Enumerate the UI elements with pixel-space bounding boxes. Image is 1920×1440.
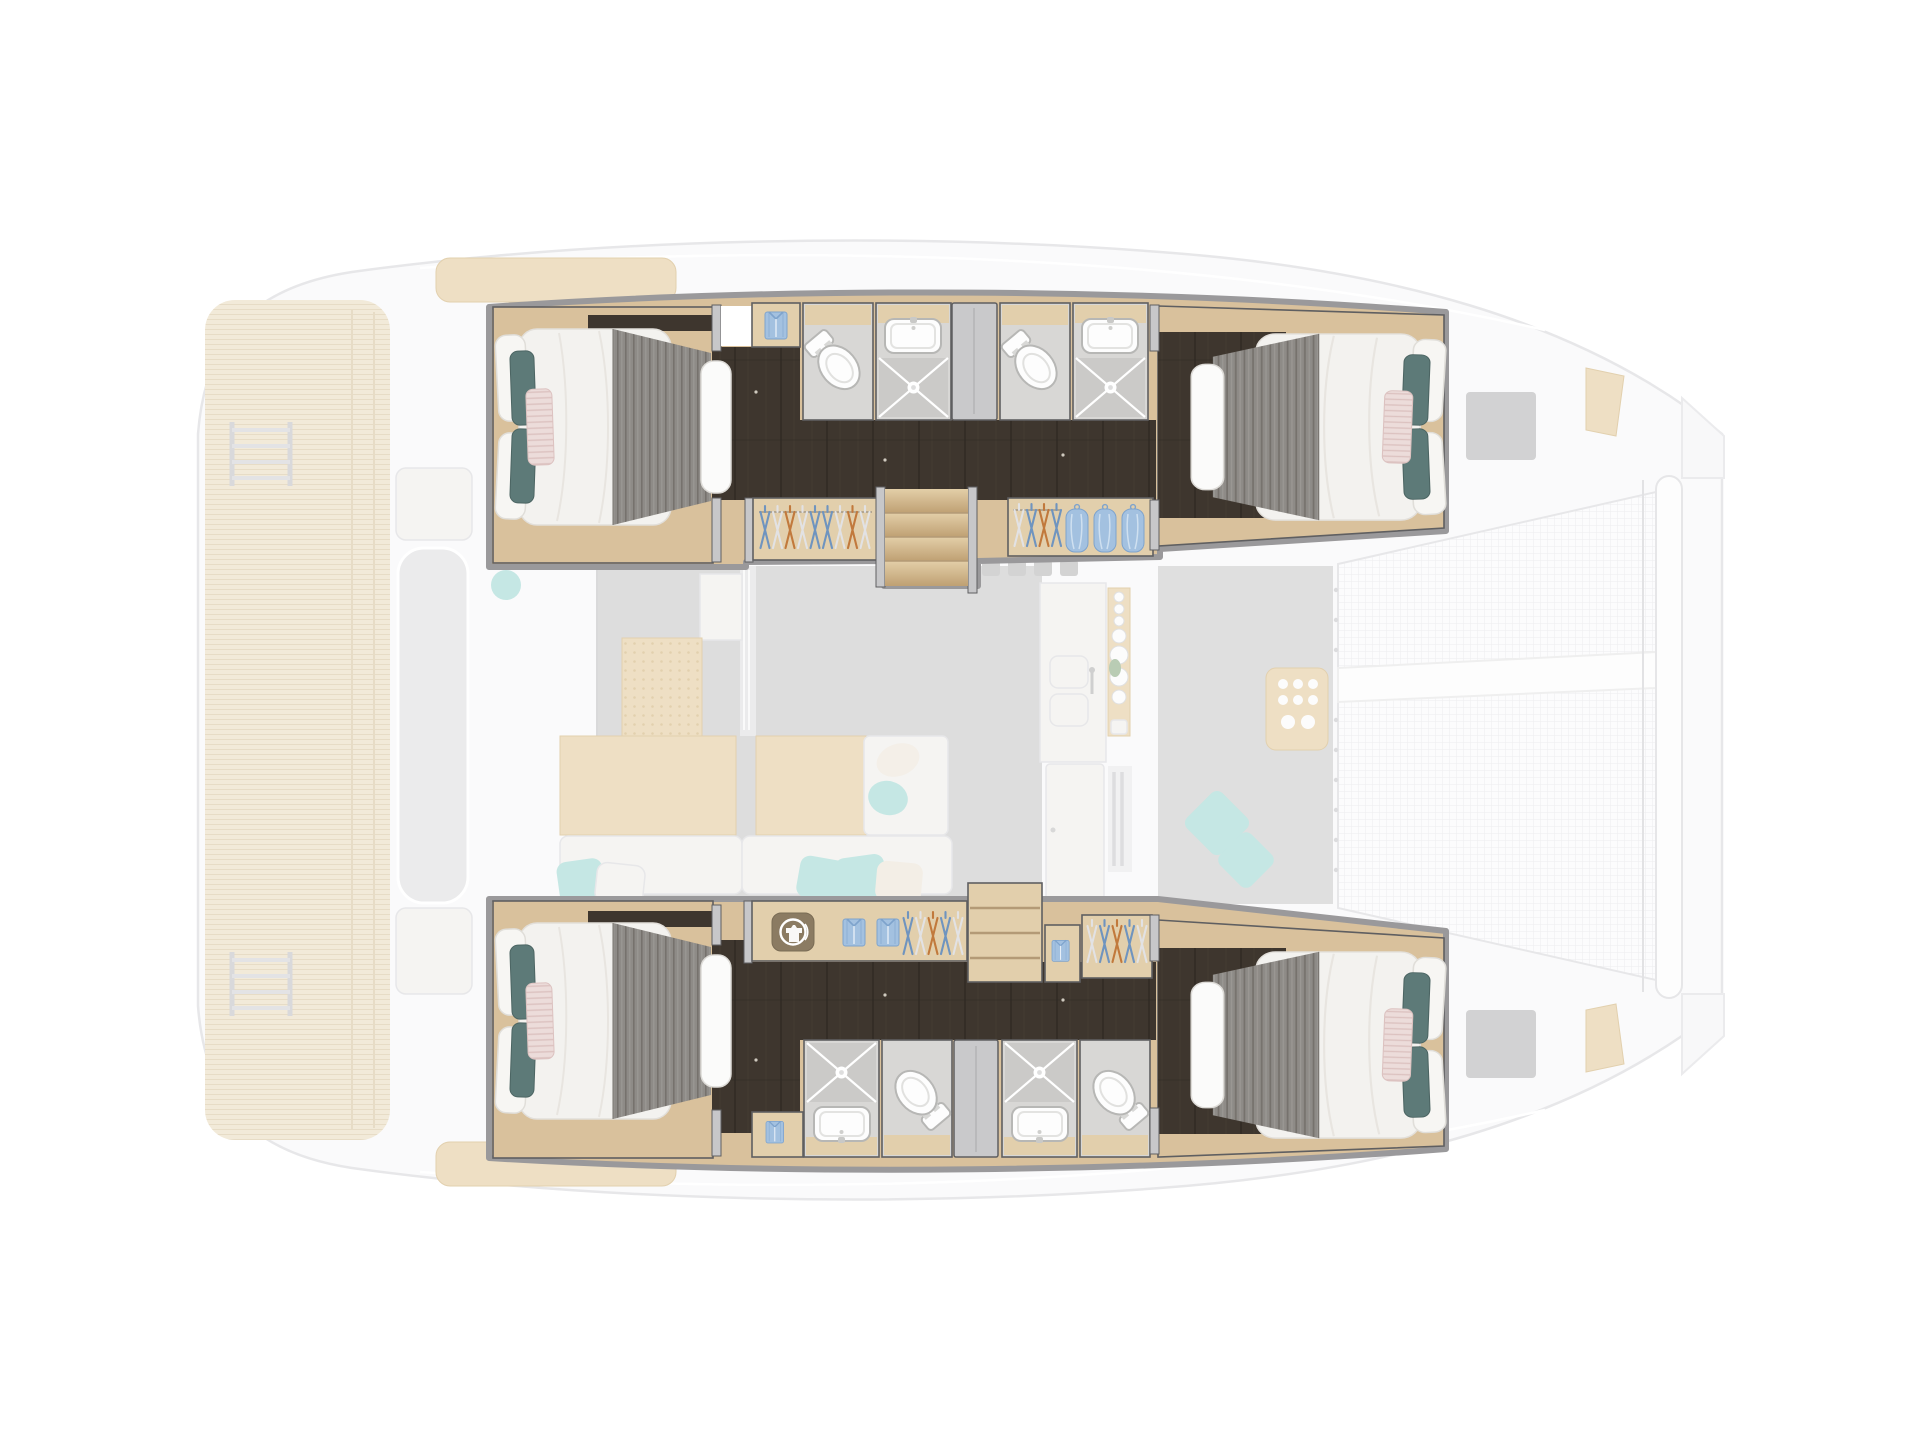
port-fwd-cabin — [1150, 305, 1446, 550]
deck-hatch-top — [1466, 392, 1536, 460]
wall-stub — [1150, 915, 1159, 961]
stbd-fwd-locker — [1045, 925, 1080, 982]
port-fwd-wardrobe — [1008, 498, 1153, 556]
pegboard-dots — [622, 638, 702, 736]
sideboard — [560, 736, 736, 835]
cockpit-bench — [398, 548, 468, 903]
bow-tip-bottom — [1682, 994, 1724, 1074]
daybed-base — [756, 736, 866, 835]
cockpit-seat-top — [436, 258, 676, 302]
stbd-shelves — [968, 883, 1042, 982]
port-aft-bed — [495, 329, 731, 525]
saloon-cabinet — [700, 574, 742, 640]
small-appliance — [1111, 720, 1127, 734]
ghost-stern-platforms — [205, 300, 390, 1140]
stbd-fwd-wardrobe — [1082, 915, 1152, 978]
wall-stub — [712, 1110, 721, 1156]
wall-stub — [712, 905, 721, 945]
wall-stub — [712, 305, 721, 351]
trampoline-net — [1338, 492, 1656, 980]
step-4 — [885, 561, 968, 586]
floorplan-canvas — [0, 0, 1920, 1440]
cockpit-table-bottom — [396, 908, 472, 994]
step-3 — [885, 537, 968, 561]
side-table — [491, 570, 521, 600]
herb-plant — [1109, 659, 1121, 677]
port-fwd-bed — [1191, 334, 1446, 520]
stbd-fwd-head — [1002, 1040, 1153, 1157]
stbd-fwd-bed — [1191, 952, 1446, 1138]
crossbeam — [1656, 476, 1682, 998]
port-aft-wardrobe — [745, 498, 880, 562]
fridge — [1046, 764, 1104, 908]
doorway-gap — [721, 306, 752, 346]
wall-stub — [1150, 305, 1159, 351]
wall-stub — [1150, 1108, 1159, 1154]
ghost-saloon — [555, 566, 1042, 906]
stbd-aft-locker — [752, 1112, 803, 1157]
port-aft-head — [800, 303, 951, 420]
cockpit-table-top — [396, 468, 472, 540]
stbd-aft-bed — [495, 923, 731, 1119]
vent-column — [1108, 766, 1132, 872]
step-2 — [885, 513, 968, 537]
port-shirt-locker — [752, 303, 800, 347]
sink-1 — [1050, 656, 1088, 688]
starboard-hull — [489, 883, 1446, 1170]
step-1 — [885, 489, 968, 513]
faucet-base — [1089, 667, 1095, 673]
bow-tip-top — [1682, 398, 1724, 478]
port-fwd-head — [997, 303, 1148, 420]
stbd-vanity-desk — [744, 901, 967, 963]
fridge-handle — [1051, 828, 1056, 833]
port-companionway — [876, 487, 977, 593]
stbd-fwd-cabin — [1150, 915, 1446, 1157]
catamaran-floorplan — [0, 0, 1920, 1440]
deck-hatch-bottom — [1466, 1010, 1536, 1078]
sink-2 — [1050, 694, 1088, 726]
stbd-aft-head — [804, 1040, 955, 1157]
wall-stub — [1150, 500, 1159, 550]
wall-stub — [712, 498, 721, 562]
